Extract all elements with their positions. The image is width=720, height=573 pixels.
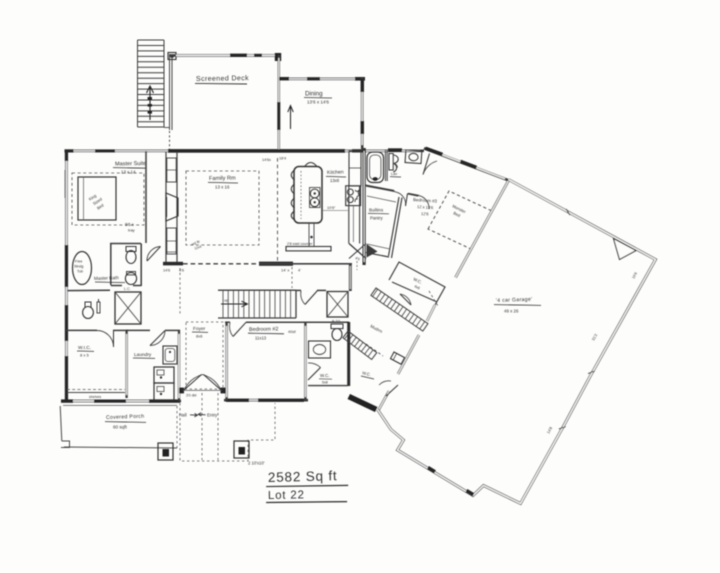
svg-text:3'0 dbl: 3'0 dbl — [186, 393, 197, 397]
svg-text:up: up — [224, 299, 228, 303]
svg-text:8x6: 8x6 — [196, 334, 203, 339]
svg-text:13'6 x 14'6: 13'6 x 14'6 — [307, 100, 329, 105]
svg-text:Entry: Entry — [207, 413, 218, 418]
svg-text:W.C.: W.C. — [320, 373, 330, 378]
svg-text:49 x 26: 49 x 26 — [504, 309, 519, 314]
svg-text:16'4: 16'4 — [279, 157, 286, 161]
svg-text:Pantry: Pantry — [370, 216, 383, 221]
svg-text:4'6: 4'6 — [179, 269, 184, 273]
svg-text:9'6 x: 9'6 x — [125, 222, 135, 227]
svg-text:4': 4' — [298, 269, 301, 273]
svg-text:Foyer: Foyer — [193, 326, 206, 332]
svg-text:Hall: Hall — [179, 413, 187, 418]
svg-text:5x8: 5x8 — [322, 381, 328, 385]
svg-text:2 10'x10': 2 10'x10' — [248, 461, 265, 466]
svg-text:13x8: 13x8 — [330, 178, 340, 183]
svg-text:Master Bath: Master Bath — [94, 275, 119, 281]
svg-text:14'6: 14'6 — [163, 269, 170, 273]
svg-text:11x13: 11x13 — [255, 336, 267, 341]
svg-text:8 x 5: 8 x 5 — [80, 353, 89, 358]
svg-text:Screened Deck: Screened Deck — [196, 75, 249, 83]
svg-text:Kitchen: Kitchen — [327, 169, 344, 176]
svg-text:Master Suite: Master Suite — [115, 161, 147, 168]
svg-text:10'6": 10'6" — [327, 206, 336, 210]
svg-text:Builtins: Builtins — [369, 208, 384, 213]
svg-text:Tub: Tub — [77, 270, 83, 274]
svg-text:Dining: Dining — [305, 91, 323, 98]
svg-text:tray: tray — [128, 228, 135, 233]
svg-text:'4 car Garage': '4 car Garage' — [496, 297, 533, 304]
svg-text:W.I.C.: W.I.C. — [78, 345, 91, 351]
svg-text:40sf: 40sf — [288, 329, 296, 334]
svg-text:Laundry: Laundry — [134, 352, 152, 358]
svg-text:13 x 14: 13 x 14 — [121, 170, 136, 175]
svg-text:14' x: 14' x — [281, 268, 289, 273]
svg-text:60 sqft: 60 sqft — [113, 425, 128, 430]
svg-text:2582 Sq ft: 2582 Sq ft — [268, 468, 338, 485]
svg-text:Lav: Lav — [391, 172, 397, 176]
svg-text:12'6: 12'6 — [421, 211, 430, 217]
svg-text:shelves: shelves — [89, 395, 101, 399]
svg-text:Free: Free — [75, 260, 82, 264]
svg-text:Family Rm: Family Rm — [209, 176, 236, 182]
svg-text:Stndg: Stndg — [74, 265, 83, 269]
svg-text:13 x 16: 13 x 16 — [215, 185, 230, 190]
svg-text:L.C.: L.C. — [124, 287, 131, 291]
svg-text:Lot 22: Lot 22 — [268, 489, 305, 502]
svg-text:14'6x: 14'6x — [262, 158, 271, 162]
svg-text:Bedroom #2: Bedroom #2 — [249, 326, 278, 333]
